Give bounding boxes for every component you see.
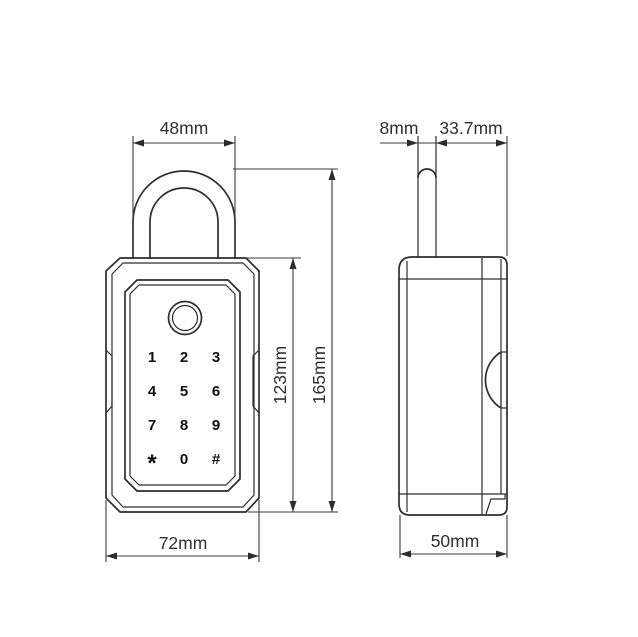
keypad-key: 6 [212, 383, 220, 400]
keypad-key: 4 [148, 383, 157, 400]
keypad-key: 2 [180, 349, 188, 366]
dimension-body-width: 72mm [106, 500, 259, 562]
shackle-thickness-dim-label: 8mm [380, 118, 419, 138]
body-height-dim-label: 123mm [270, 346, 290, 404]
keypad-key: 9 [212, 417, 220, 434]
keypad-key: 5 [180, 383, 188, 400]
side-view [399, 136, 507, 515]
body-width-dim-label: 72mm [159, 533, 208, 553]
lock-box-dimension-drawing: 1 2 3 4 5 6 7 8 9 * 0 # [0, 0, 638, 637]
dimension-drawing-page: 1 2 3 4 5 6 7 8 9 * 0 # [0, 0, 638, 637]
shackle-outer [133, 171, 235, 259]
fingerprint-sensor-icon [169, 302, 202, 335]
side-body-outline [399, 257, 507, 515]
fingerprint-sensor-inner-ring [173, 306, 198, 331]
left-side-seam [106, 350, 112, 413]
keypad-key-star: * [147, 450, 157, 477]
dimension-shackle-thickness: 8mm 33.7mm [380, 118, 507, 256]
front-view: 1 2 3 4 5 6 7 8 9 * 0 # [106, 171, 259, 512]
dimension-overall-height: 165mm [233, 169, 338, 512]
keypad-key: 7 [148, 417, 156, 434]
dimension-body-depth: 50mm [400, 515, 507, 558]
keypad-key: 8 [180, 417, 188, 434]
bottom-right-notch [486, 494, 505, 514]
keypad-key: 1 [148, 349, 156, 366]
shackle-to-back-dim-label: 33.7mm [439, 118, 502, 138]
body-depth-dim-label: 50mm [431, 531, 480, 551]
keypad-key-hash: # [212, 451, 221, 468]
keypad: 1 2 3 4 5 6 7 8 9 * 0 # [147, 349, 221, 477]
shackle-width-dim-label: 48mm [160, 118, 209, 138]
keypad-key-zero: 0 [180, 451, 188, 468]
shackle-inner [150, 188, 218, 259]
latch-button-bump [485, 352, 507, 408]
side-shackle-top-cap [418, 169, 436, 178]
overall-height-dim-label: 165mm [309, 346, 329, 404]
keypad-key: 3 [212, 349, 220, 366]
